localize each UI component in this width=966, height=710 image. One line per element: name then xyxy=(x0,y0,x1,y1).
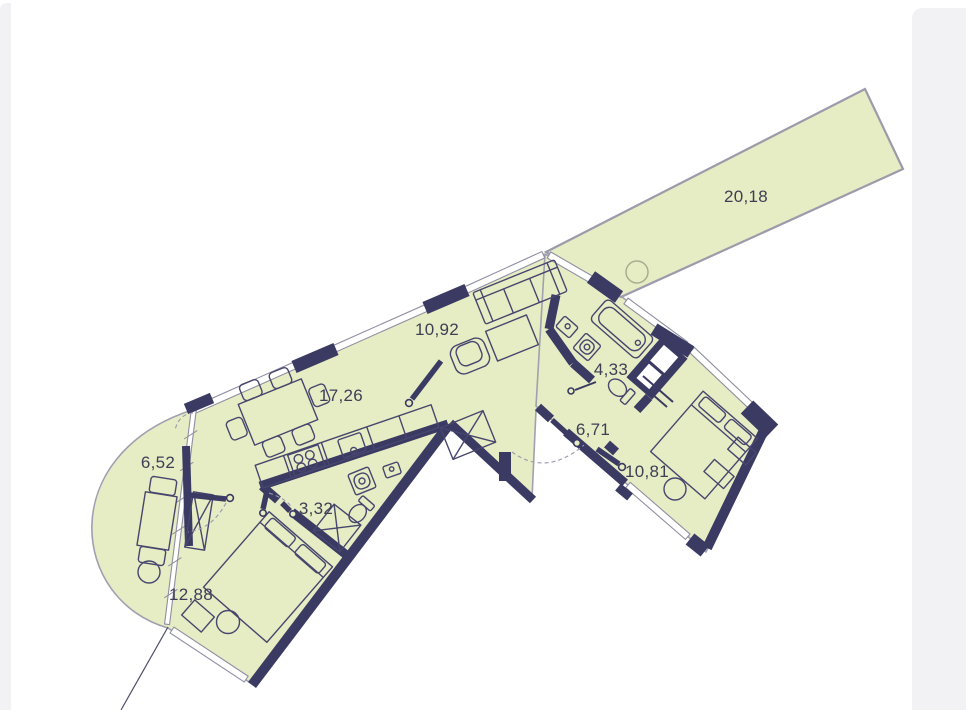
room-label-living: 10,92 xyxy=(415,320,459,339)
room-label-balcony: 6,52 xyxy=(141,453,175,472)
floor-plan-svg: 20,18 10,92 17,26 6,52 3,32 12,88 4,33 6… xyxy=(0,0,966,710)
room-label-bathroom-small: 3,32 xyxy=(299,499,333,518)
room-label-bathroom-main: 4,33 xyxy=(594,360,628,379)
room-label-hallway: 6,71 xyxy=(576,420,610,439)
left-background-panel xyxy=(0,3,11,710)
room-label-terrace: 20,18 xyxy=(724,187,768,206)
leader-line xyxy=(121,627,168,710)
right-background-panel xyxy=(912,8,966,710)
floor-plan-page: 20,18 10,92 17,26 6,52 3,32 12,88 4,33 6… xyxy=(0,0,966,710)
room-label-bedroom-secondary: 10,81 xyxy=(625,462,669,481)
room-label-bedroom-primary: 12,88 xyxy=(169,585,213,604)
room-label-kitchen-living: 17,26 xyxy=(319,386,363,405)
